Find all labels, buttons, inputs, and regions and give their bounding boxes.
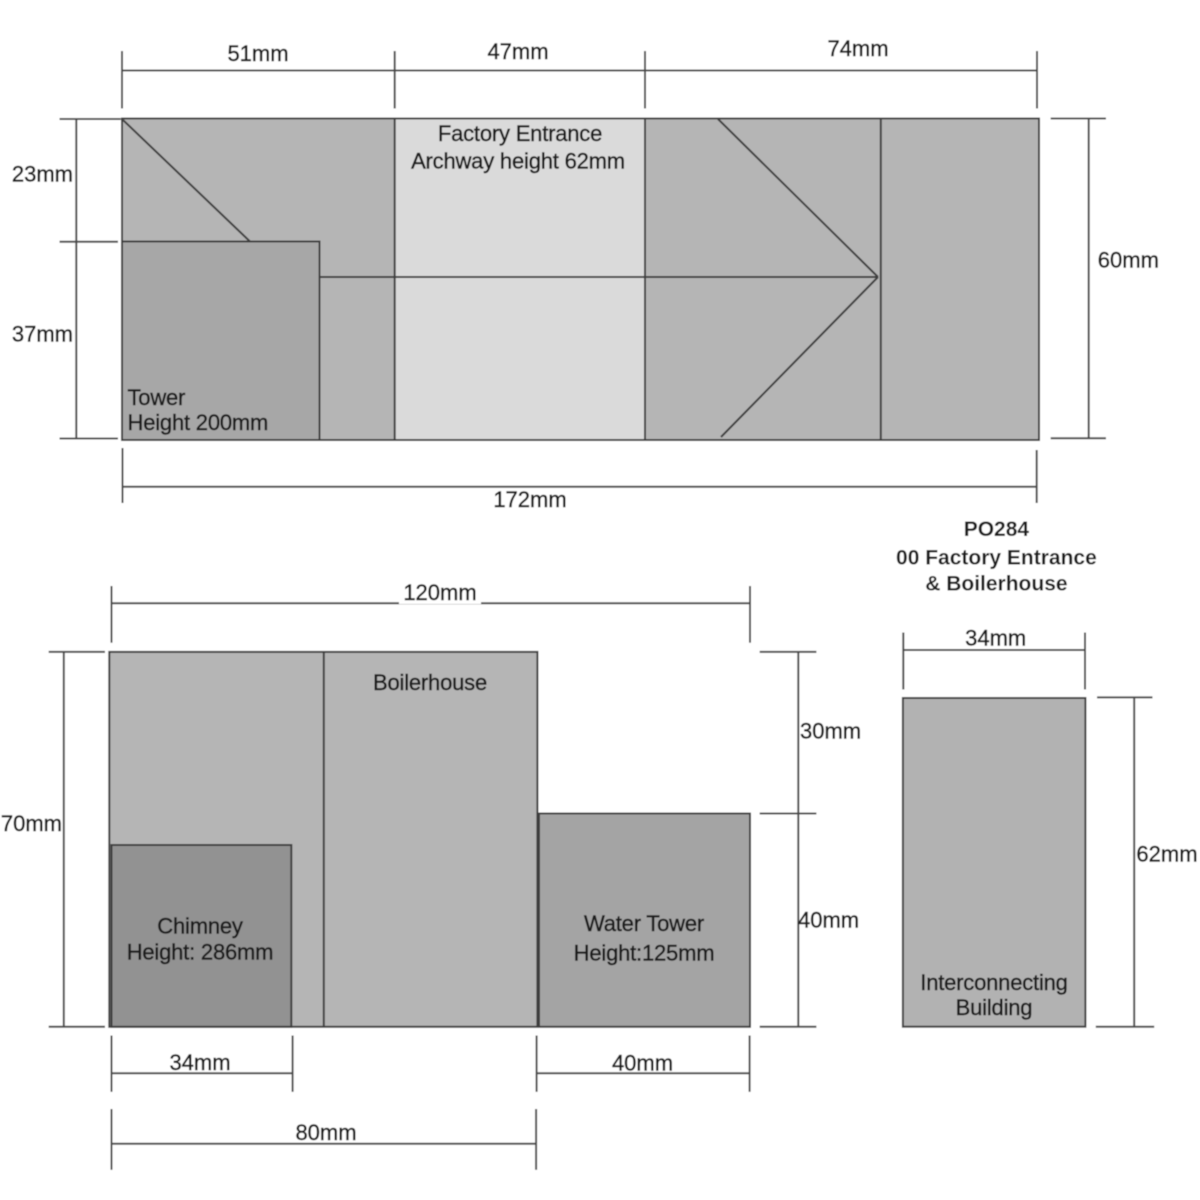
svg-text:Water Tower: Water Tower [584,911,704,936]
svg-text:Tower: Tower [128,385,186,410]
svg-text:34mm: 34mm [169,1050,230,1075]
svg-text:40mm: 40mm [798,908,859,933]
svg-text:47mm: 47mm [487,39,548,64]
svg-text:62mm: 62mm [1136,842,1197,867]
svg-text:30mm: 30mm [800,718,861,743]
svg-text:172mm: 172mm [493,487,566,512]
svg-text:00 Factory Entrance: 00 Factory Entrance [896,547,1097,570]
svg-text:Interconnecting: Interconnecting [920,970,1067,995]
svg-text:Chimney: Chimney [157,914,243,939]
svg-text:40mm: 40mm [612,1051,673,1076]
svg-text:37mm: 37mm [12,322,73,347]
svg-text:Boilerhouse: Boilerhouse [373,670,487,695]
svg-text:120mm: 120mm [403,580,476,605]
svg-text:80mm: 80mm [295,1120,356,1145]
svg-text:51mm: 51mm [227,41,288,66]
svg-text:Archway height 62mm: Archway height 62mm [411,149,625,174]
svg-text:74mm: 74mm [827,36,888,61]
svg-text:23mm: 23mm [12,162,73,187]
svg-text:Height:125mm: Height:125mm [574,940,715,965]
svg-text:& Boilerhouse: & Boilerhouse [925,573,1067,596]
svg-text:PO284: PO284 [964,518,1030,541]
svg-text:60mm: 60mm [1098,247,1159,272]
svg-text:Factory Entrance: Factory Entrance [438,121,602,146]
svg-text:70mm: 70mm [1,811,62,836]
svg-text:Height: 286mm: Height: 286mm [127,940,274,965]
svg-text:Building: Building [956,995,1033,1020]
svg-text:34mm: 34mm [965,626,1026,651]
svg-text:Height 200mm: Height 200mm [128,410,269,435]
